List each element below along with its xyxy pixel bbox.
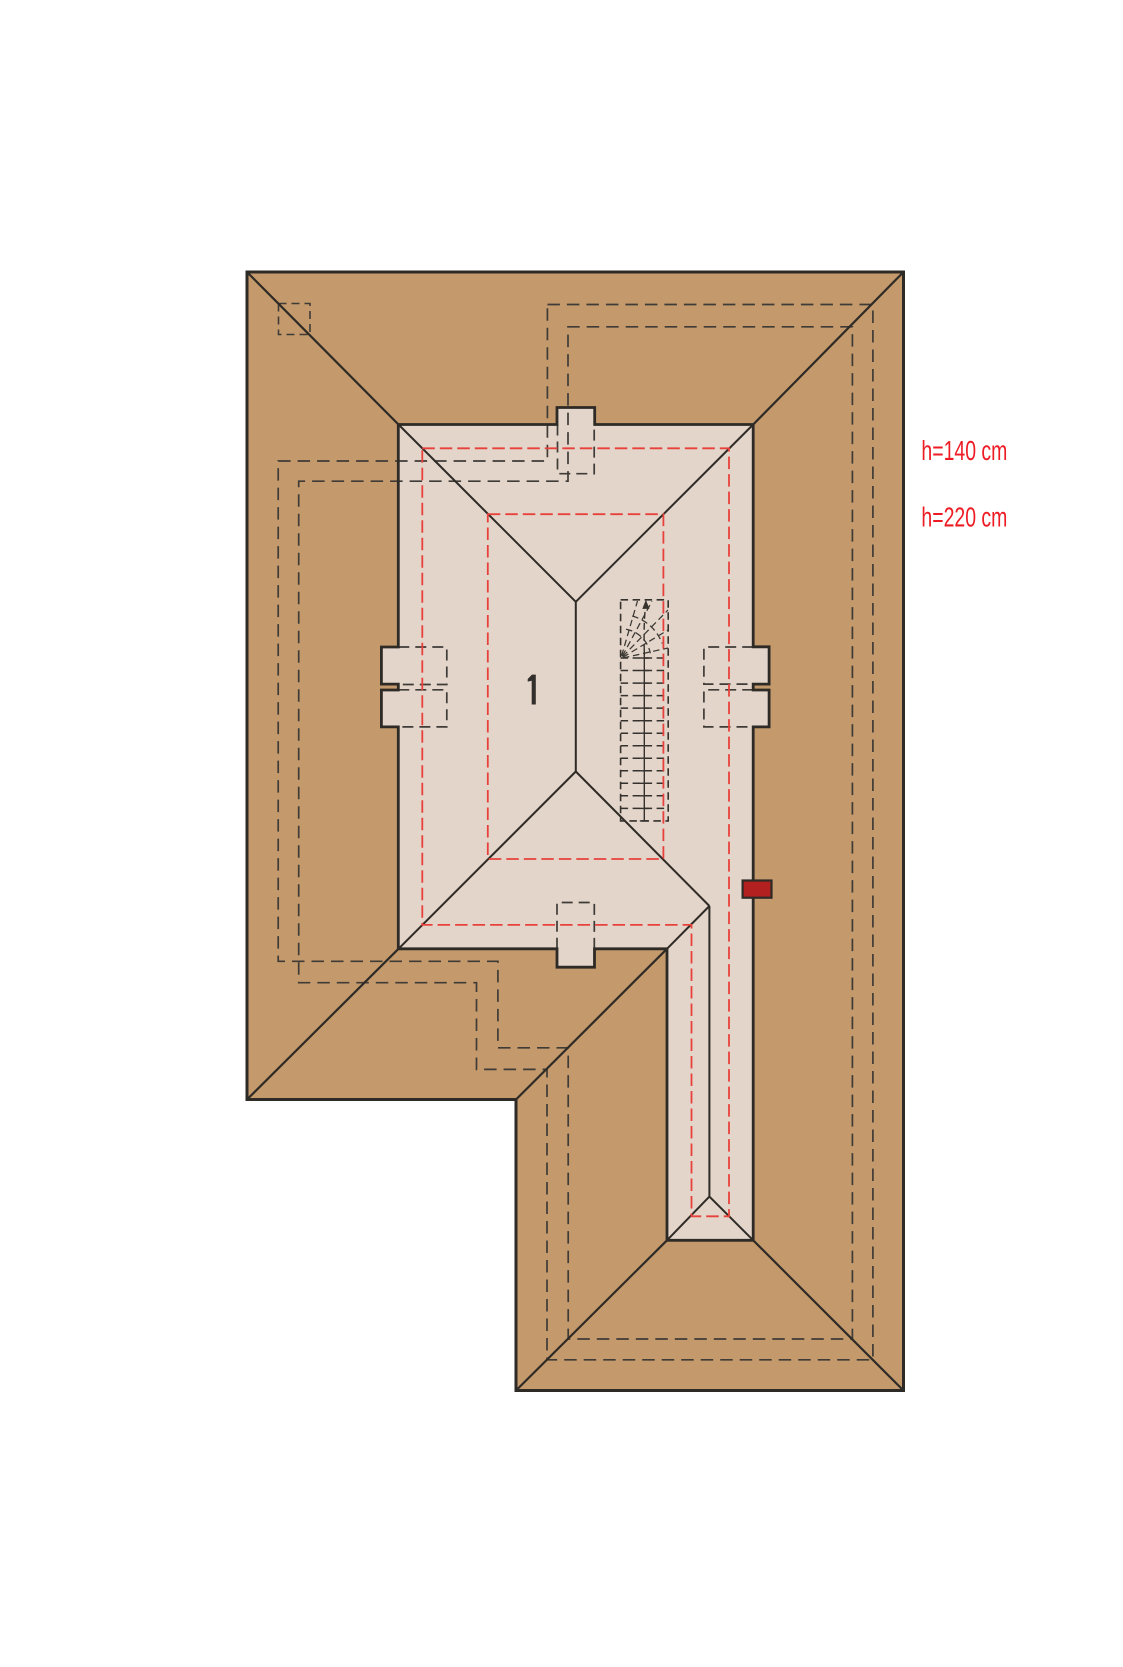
svg-text:h=220 cm: h=220 cm bbox=[921, 502, 1007, 533]
svg-text:h=140 cm: h=140 cm bbox=[921, 436, 1007, 467]
